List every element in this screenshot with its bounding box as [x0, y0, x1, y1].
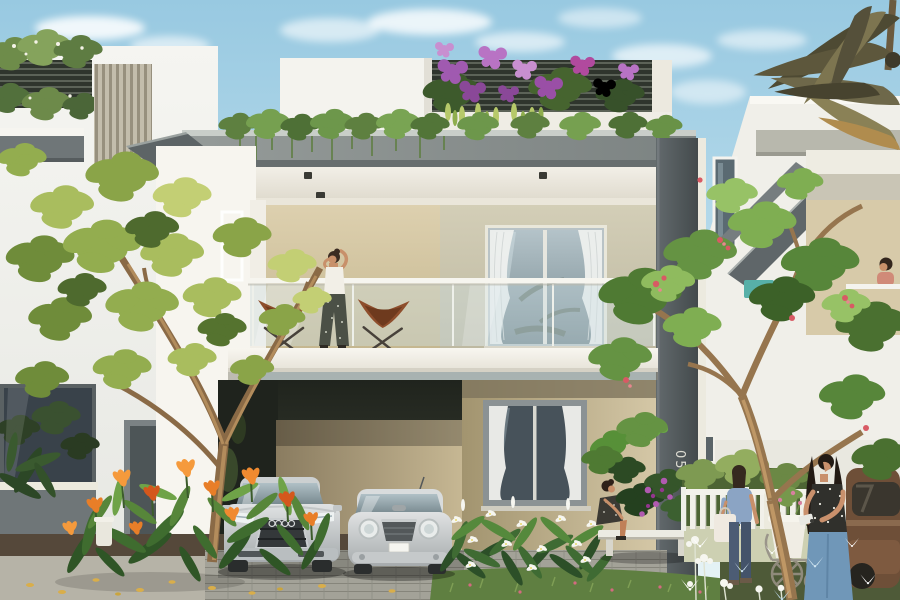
brown-suv	[846, 468, 900, 589]
mini-car	[343, 477, 455, 581]
render-canvas: 05	[0, 0, 900, 600]
ground-window	[481, 400, 591, 511]
mini-grille	[381, 519, 417, 541]
villa-exterior-render: 05	[0, 0, 900, 600]
white-vase	[94, 517, 114, 546]
right-balcony-rail	[846, 284, 900, 289]
license-plate	[389, 543, 409, 552]
